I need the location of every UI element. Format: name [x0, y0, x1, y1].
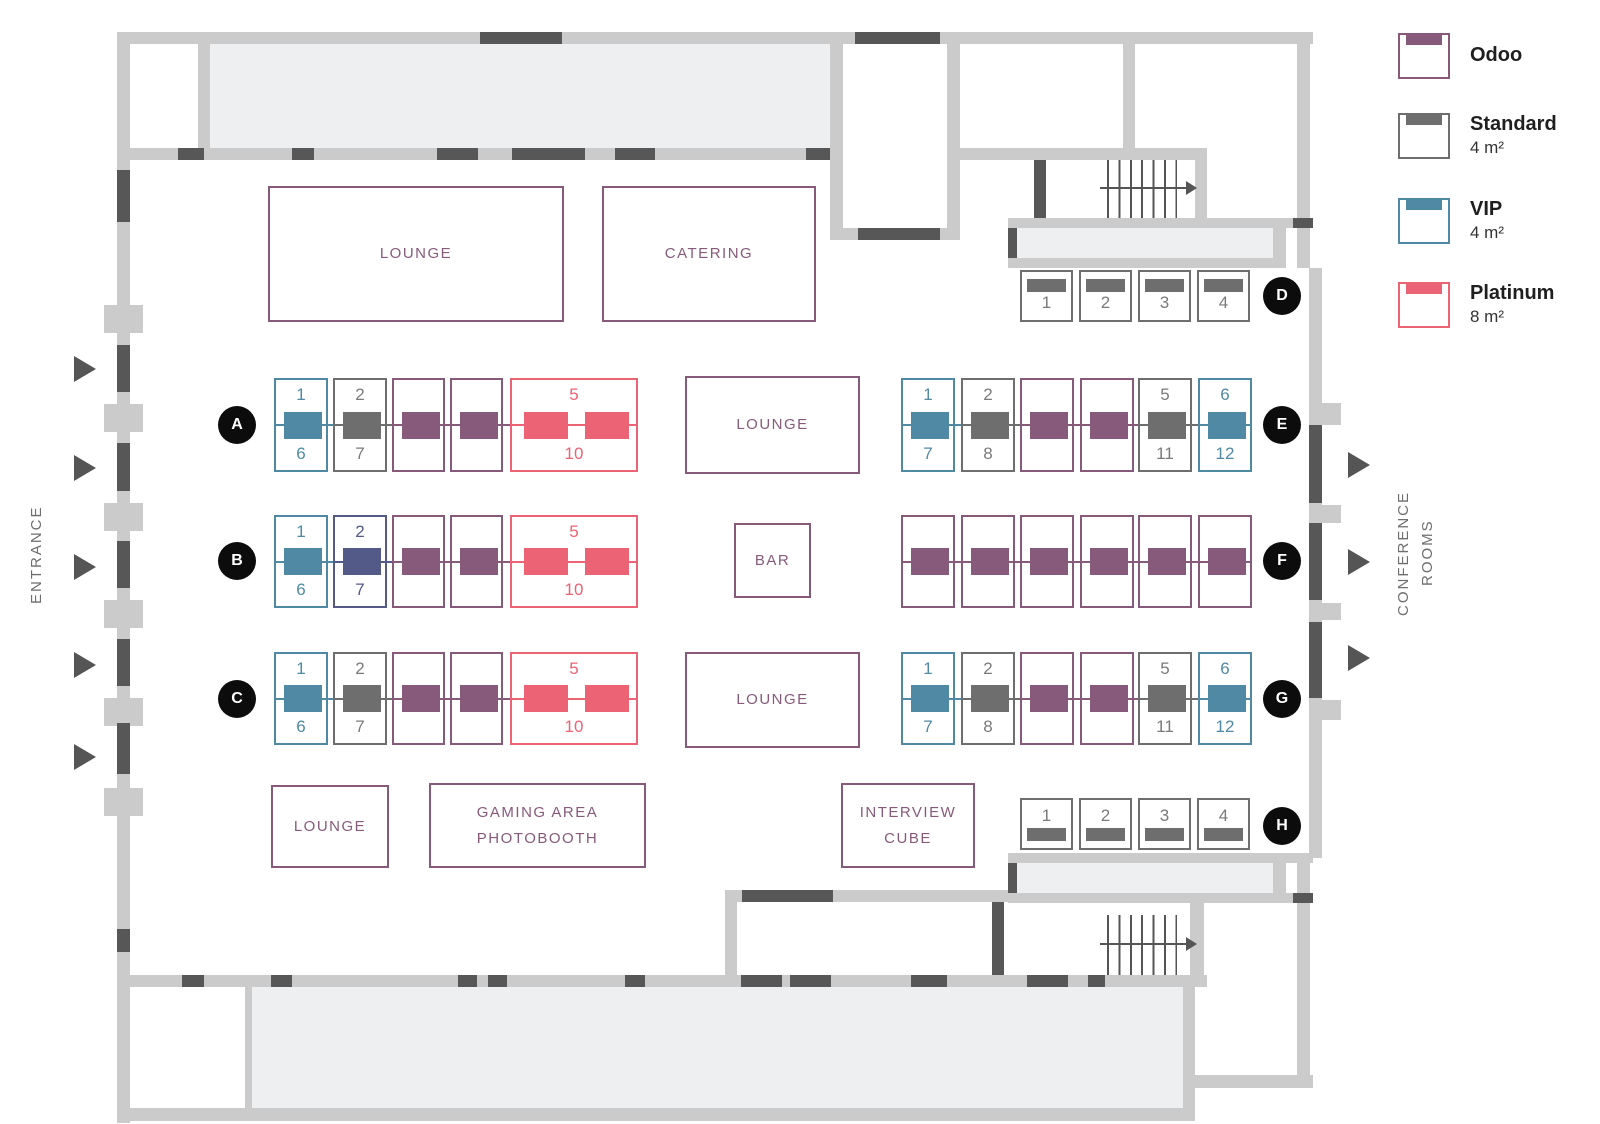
door-segment	[117, 639, 130, 686]
booth-d-4-standard[interactable]: 4	[1197, 270, 1250, 322]
area-gaming-area: GAMING AREAPHOTOBOOTH	[429, 783, 646, 868]
booth-number-top: 6	[1200, 386, 1250, 405]
booth-table	[1145, 828, 1184, 841]
booth-number: 4	[1199, 807, 1248, 826]
booth-a-4-odoo[interactable]	[450, 378, 503, 472]
row-badge-h: H	[1263, 807, 1301, 845]
booth-divider-stub	[503, 424, 510, 426]
stairs-icon	[1107, 915, 1177, 975]
row-badge-e: E	[1263, 406, 1301, 444]
legend-label: Platinum	[1470, 282, 1554, 305]
area-interview-cube-label: CUBE	[884, 826, 932, 852]
legend-size: 4 m²	[1470, 223, 1504, 243]
door-segment	[480, 32, 562, 44]
booth-number-bottom: 10	[512, 445, 636, 464]
booth-table	[1148, 412, 1186, 439]
wall-segment	[1123, 44, 1135, 148]
booth-e-6-vip[interactable]: 612	[1198, 378, 1252, 472]
booth-a-5-platinum[interactable]: 510	[510, 378, 638, 472]
booth-c-3-odoo[interactable]	[392, 652, 445, 745]
booth-number-top: 5	[1140, 660, 1190, 679]
booth-number: 1	[1022, 294, 1071, 313]
legend-size: 8 m²	[1470, 307, 1504, 327]
entrance-arrow-icon	[74, 554, 96, 580]
wall-segment	[104, 404, 143, 432]
booth-table	[1148, 548, 1186, 575]
booth-f-4-odoo[interactable]	[1080, 515, 1134, 608]
booth-table	[585, 412, 629, 439]
booth-number-top: 2	[963, 386, 1013, 405]
door-segment	[858, 228, 940, 240]
wall-segment	[1297, 32, 1310, 268]
area-lounge-bottom: LOUNGE	[271, 785, 389, 868]
booth-f-5-odoo[interactable]	[1138, 515, 1192, 608]
wall-segment	[104, 305, 143, 333]
booth-d-3-standard[interactable]: 3	[1138, 270, 1191, 322]
booth-table	[1086, 828, 1125, 841]
booth-table	[971, 685, 1009, 712]
legend-label: VIP	[1470, 198, 1502, 221]
wall-segment	[1273, 853, 1286, 903]
booth-table	[402, 412, 440, 439]
booth-number-bottom: 8	[963, 445, 1013, 464]
booth-table	[971, 548, 1009, 575]
row-badge-a: A	[218, 406, 256, 444]
legend-booth-table-icon	[1406, 35, 1442, 45]
booth-number: 2	[1081, 807, 1130, 826]
area-gaming-area-label: GAMING AREA	[477, 800, 599, 826]
legend-label: Odoo	[1470, 44, 1522, 67]
booth-number-bottom: 10	[512, 718, 636, 737]
booth-h-2-standard[interactable]: 2	[1079, 798, 1132, 850]
door-segment	[1008, 228, 1017, 258]
wall-segment	[1008, 853, 1313, 863]
area-interview-cube: INTERVIEWCUBE	[841, 783, 975, 868]
wall-segment	[725, 902, 737, 975]
wall-segment	[1008, 893, 1313, 903]
booth-table	[971, 412, 1009, 439]
booth-table	[1204, 279, 1243, 292]
booth-number-bottom: 7	[335, 718, 385, 737]
legend-booth-icon-odoo	[1398, 33, 1450, 79]
entrance-arrow-icon	[74, 652, 96, 678]
stairs-arrow-head-icon	[1186, 181, 1197, 195]
booth-number: 3	[1140, 807, 1189, 826]
booth-table	[1030, 548, 1068, 575]
door-segment	[488, 975, 507, 987]
booth-a-2-standard[interactable]: 27	[333, 378, 387, 472]
door-segment	[512, 148, 585, 160]
legend-booth-table-icon	[1406, 284, 1442, 294]
booth-c-2-standard[interactable]: 27	[333, 652, 387, 745]
wall-segment	[1008, 258, 1286, 268]
booth-table	[284, 685, 322, 712]
area-lounge-mid-bottom-label: LOUNGE	[736, 687, 808, 713]
door-segment	[292, 148, 314, 160]
booth-table	[1204, 828, 1243, 841]
area-catering-label: CATERING	[665, 241, 753, 267]
booth-table	[1208, 412, 1246, 439]
booth-c-1-vip[interactable]: 16	[274, 652, 328, 745]
booth-table	[911, 548, 949, 575]
wall-segment	[104, 698, 143, 726]
door-segment	[1293, 893, 1313, 903]
booth-table	[284, 548, 322, 575]
booth-c-5-platinum[interactable]: 510	[510, 652, 638, 745]
booth-divider-stub	[503, 561, 510, 563]
conference-label-line2: ROOMS	[1419, 520, 1436, 587]
booth-number-bottom: 12	[1200, 718, 1250, 737]
booth-number-top: 5	[512, 660, 636, 679]
booth-table	[402, 685, 440, 712]
booth-table	[343, 548, 381, 575]
area-lounge-top: LOUNGE	[268, 186, 564, 322]
booth-number-bottom: 12	[1200, 445, 1250, 464]
conference-label-line1: CONFERENCE	[1395, 491, 1412, 616]
door-segment	[117, 443, 130, 491]
booth-number-bottom: 6	[276, 718, 326, 737]
booth-table	[402, 548, 440, 575]
wall-segment	[130, 148, 843, 160]
door-segment	[117, 170, 130, 222]
door-segment	[790, 975, 831, 987]
booth-g-3-odoo[interactable]	[1020, 652, 1074, 745]
wall-segment	[104, 788, 143, 816]
booth-table	[524, 548, 568, 575]
room-area	[252, 987, 1183, 1108]
booth-number-top: 5	[1140, 386, 1190, 405]
booth-table	[585, 685, 629, 712]
conference-arrow-icon	[1348, 549, 1370, 575]
room-area	[1017, 228, 1273, 258]
booth-table	[343, 412, 381, 439]
booth-number-bottom: 10	[512, 581, 636, 600]
booth-divider-stub	[503, 698, 510, 700]
booth-g-1-vip[interactable]: 17	[901, 652, 955, 745]
booth-number-bottom: 7	[335, 445, 385, 464]
booth-number-bottom: 11	[1140, 718, 1190, 737]
booth-number-top: 1	[276, 523, 326, 542]
event-floor-plan: LOUNGECATERINGLOUNGEBARLOUNGELOUNGEGAMIN…	[0, 0, 1600, 1124]
entrance-label: ENTRANCE	[25, 455, 49, 655]
booth-f-6-odoo[interactable]	[1198, 515, 1252, 608]
wall-segment	[830, 44, 843, 240]
area-bar: BAR	[734, 523, 811, 598]
booth-number-bottom: 7	[903, 445, 953, 464]
booth-table	[343, 685, 381, 712]
door-segment	[178, 148, 204, 160]
legend-booth-table-icon	[1406, 115, 1442, 125]
booth-table	[524, 685, 568, 712]
booth-table	[524, 412, 568, 439]
area-gaming-area-label: PHOTOBOOTH	[477, 826, 598, 852]
conference-arrow-icon	[1348, 645, 1370, 671]
booth-table	[460, 685, 498, 712]
stairs-direction-arrow-icon	[1100, 943, 1186, 945]
booth-e-1-vip[interactable]: 17	[901, 378, 955, 472]
door-segment	[911, 975, 947, 987]
booth-e-3-odoo[interactable]	[1020, 378, 1074, 472]
booth-number: 1	[1022, 807, 1071, 826]
booth-table	[460, 412, 498, 439]
booth-table	[1030, 412, 1068, 439]
entrance-label-text: ENTRANCE	[28, 506, 45, 605]
door-segment	[855, 32, 940, 44]
booth-table	[1027, 279, 1066, 292]
area-interview-cube-label: INTERVIEW	[860, 800, 957, 826]
booth-e-4-odoo[interactable]	[1080, 378, 1134, 472]
booth-number: 4	[1199, 294, 1248, 313]
booth-number-top: 5	[512, 523, 636, 542]
conference-rooms-label: CONFERENCE ROOMS	[1392, 453, 1440, 653]
door-segment	[1309, 425, 1322, 503]
row-badge-d: D	[1263, 277, 1301, 315]
booth-number-top: 2	[335, 660, 385, 679]
area-lounge-mid-bottom: LOUNGE	[685, 652, 860, 748]
booth-table	[911, 412, 949, 439]
wall-segment	[104, 503, 143, 531]
area-lounge-mid-top-label: LOUNGE	[736, 412, 808, 438]
wall-segment	[1273, 228, 1286, 268]
booth-b-5-platinum[interactable]: 510	[510, 515, 638, 608]
entrance-arrow-icon	[74, 744, 96, 770]
booth-table	[1030, 685, 1068, 712]
booth-a-3-odoo[interactable]	[392, 378, 445, 472]
area-lounge-bottom-label: LOUNGE	[294, 814, 366, 840]
booth-number-top: 1	[903, 386, 953, 405]
legend-booth-icon-standard	[1398, 113, 1450, 159]
booth-number-bottom: 7	[903, 718, 953, 737]
wall-segment	[1309, 700, 1341, 720]
door-segment	[1088, 975, 1105, 987]
legend-size: 4 m²	[1470, 138, 1504, 158]
booth-b-2-dark[interactable]: 27	[333, 515, 387, 608]
booth-g-6-vip[interactable]: 612	[1198, 652, 1252, 745]
booth-h-3-standard[interactable]: 3	[1138, 798, 1191, 850]
wall-segment	[1309, 505, 1341, 523]
booth-number-bottom: 8	[963, 718, 1013, 737]
booth-number: 2	[1081, 294, 1130, 313]
door-segment	[741, 975, 782, 987]
booth-g-5-standard[interactable]: 511	[1138, 652, 1192, 745]
room-area	[1017, 863, 1273, 893]
door-segment	[117, 929, 130, 952]
row-badge-c: C	[218, 680, 256, 718]
door-segment	[806, 148, 830, 160]
booth-table	[1148, 685, 1186, 712]
booth-table	[1208, 685, 1246, 712]
booth-table	[1090, 412, 1128, 439]
door-segment	[437, 148, 478, 160]
booth-table	[585, 548, 629, 575]
wall-segment	[1309, 403, 1341, 425]
legend-booth-icon-platinum	[1398, 282, 1450, 328]
row-badge-f: F	[1263, 542, 1301, 580]
booth-number-top: 2	[963, 660, 1013, 679]
stairs-arrow-head-icon	[1186, 937, 1197, 951]
booth-f-2-odoo[interactable]	[961, 515, 1015, 608]
booth-h-4-standard[interactable]: 4	[1197, 798, 1250, 850]
door-segment	[117, 541, 130, 588]
door-segment	[117, 345, 130, 392]
area-bar-label: BAR	[755, 548, 790, 574]
booth-number-top: 2	[335, 386, 385, 405]
legend-booth-table-icon	[1406, 200, 1442, 210]
conference-arrow-icon	[1348, 452, 1370, 478]
booth-table	[1145, 279, 1184, 292]
booth-number-top: 5	[512, 386, 636, 405]
booth-b-3-odoo[interactable]	[392, 515, 445, 608]
booth-d-1-standard[interactable]: 1	[1020, 270, 1073, 322]
door-segment	[625, 975, 645, 987]
booth-d-2-standard[interactable]: 2	[1079, 270, 1132, 322]
booth-number-top: 1	[903, 660, 953, 679]
booth-table	[1086, 279, 1125, 292]
booth-number-bottom: 11	[1140, 445, 1190, 464]
booth-number-top: 6	[1200, 660, 1250, 679]
door-segment	[117, 723, 130, 774]
booth-table	[460, 548, 498, 575]
door-segment	[1027, 975, 1068, 987]
area-catering: CATERING	[602, 186, 816, 322]
booth-number-bottom: 7	[335, 581, 385, 600]
area-lounge-mid-top: LOUNGE	[685, 376, 860, 474]
wall-segment	[1195, 1075, 1313, 1088]
booth-b-1-vip[interactable]: 16	[274, 515, 328, 608]
booth-b-4-odoo[interactable]	[450, 515, 503, 608]
stairs-direction-arrow-icon	[1100, 187, 1186, 189]
booth-number: 3	[1140, 294, 1189, 313]
booth-table	[1208, 548, 1246, 575]
booth-number-bottom: 6	[276, 581, 326, 600]
stairs-icon	[1107, 160, 1177, 218]
door-segment	[458, 975, 477, 987]
booth-g-2-standard[interactable]: 28	[961, 652, 1015, 745]
booth-f-1-odoo[interactable]	[901, 515, 955, 608]
row-badge-g: G	[1263, 680, 1301, 718]
booth-number-top: 1	[276, 386, 326, 405]
room-area	[210, 44, 830, 148]
area-lounge-top-label: LOUNGE	[380, 241, 452, 267]
entrance-arrow-icon	[74, 356, 96, 382]
legend-booth-icon-vip	[1398, 198, 1450, 244]
door-segment	[615, 148, 655, 160]
wall-segment	[1309, 603, 1341, 620]
door-segment	[1309, 523, 1322, 600]
door-segment	[1034, 160, 1046, 218]
booth-e-2-standard[interactable]: 28	[961, 378, 1015, 472]
entrance-arrow-icon	[74, 455, 96, 481]
door-segment	[992, 902, 1004, 975]
legend-label: Standard	[1470, 113, 1557, 136]
booth-table	[1027, 828, 1066, 841]
wall-segment	[947, 44, 960, 240]
wall-segment	[104, 600, 143, 628]
booth-number-top: 2	[335, 523, 385, 542]
door-segment	[182, 975, 204, 987]
booth-a-1-vip[interactable]: 16	[274, 378, 328, 472]
wall-segment	[117, 32, 1313, 44]
booth-f-3-odoo[interactable]	[1020, 515, 1074, 608]
wall-segment	[960, 148, 1207, 160]
door-segment	[271, 975, 292, 987]
door-segment	[1008, 863, 1017, 893]
booth-table	[911, 685, 949, 712]
wall-segment	[1183, 987, 1195, 1121]
door-segment	[1293, 218, 1313, 228]
wall-segment	[1008, 218, 1313, 228]
booth-number-bottom: 6	[276, 445, 326, 464]
booth-h-1-standard[interactable]: 1	[1020, 798, 1073, 850]
row-badge-b: B	[218, 542, 256, 580]
booth-table	[284, 412, 322, 439]
booth-table	[1090, 685, 1128, 712]
door-segment	[742, 890, 833, 902]
booth-g-4-odoo[interactable]	[1080, 652, 1134, 745]
door-segment	[1309, 622, 1322, 698]
booth-c-4-odoo[interactable]	[450, 652, 503, 745]
wall-segment	[117, 1108, 1195, 1121]
booth-e-5-standard[interactable]: 511	[1138, 378, 1192, 472]
booth-number-top: 1	[276, 660, 326, 679]
wall-segment	[198, 44, 210, 148]
booth-table	[1090, 548, 1128, 575]
